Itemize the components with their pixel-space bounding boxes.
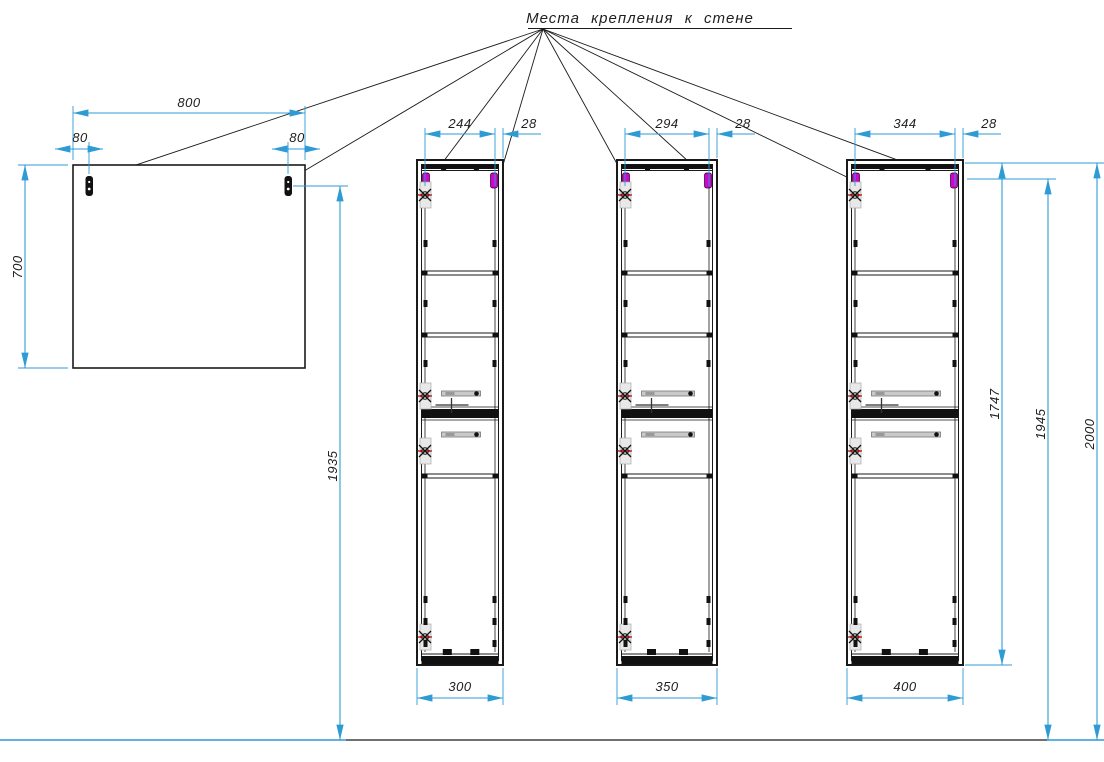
wall-mount-bracket (491, 173, 498, 188)
cabinet-300 (417, 160, 503, 665)
dim-label-cabinet-height: 1747 (987, 388, 1002, 419)
dim-label-cab3-edge: 28 (980, 116, 997, 131)
cabinet-400 (847, 160, 963, 665)
dim-label-cab1-span: 244 (447, 116, 471, 131)
cabinet-350 (617, 160, 717, 665)
title-text: Места крепления к стене (526, 10, 754, 27)
height-dimensions: 1747 1945 2000 (965, 163, 1104, 740)
dim-label-mount-to-floor: 1935 (325, 450, 340, 481)
dim-label-cab2-span: 294 (654, 116, 678, 131)
title-block: Места крепления к стене (91, 10, 957, 182)
dim-label-cab3-width: 400 (893, 679, 916, 694)
dim-label-cab2-edge: 28 (734, 116, 751, 131)
drawing-canvas: Места крепления к стене (0, 0, 1104, 762)
dim-label-mirror-width: 800 (177, 95, 200, 110)
dim-label-mirror-right-offset: 80 (289, 130, 305, 145)
dim-label-mirror-left-offset: 80 (72, 130, 88, 145)
leader-lines (91, 29, 957, 182)
dim-label-cab3-span: 344 (893, 116, 916, 131)
mirror-mount-bracket-right (285, 176, 293, 196)
furniture-mounting-drawing: Места крепления к стене (0, 0, 1104, 762)
dim-label-cab1-width: 300 (448, 679, 471, 694)
mirror-panel (73, 165, 305, 368)
wall-mount-bracket (705, 173, 712, 188)
mirror-mount-bracket-left (86, 176, 94, 196)
mirror-outline (73, 165, 305, 368)
dim-label-mount-height: 1945 (1033, 408, 1048, 439)
dim-label-mirror-height: 700 (10, 255, 25, 278)
dim-label-total-height: 2000 (1082, 418, 1097, 450)
wall-mount-bracket (951, 173, 958, 188)
dim-label-cab2-width: 350 (655, 679, 678, 694)
dim-label-cab1-edge: 28 (520, 116, 537, 131)
